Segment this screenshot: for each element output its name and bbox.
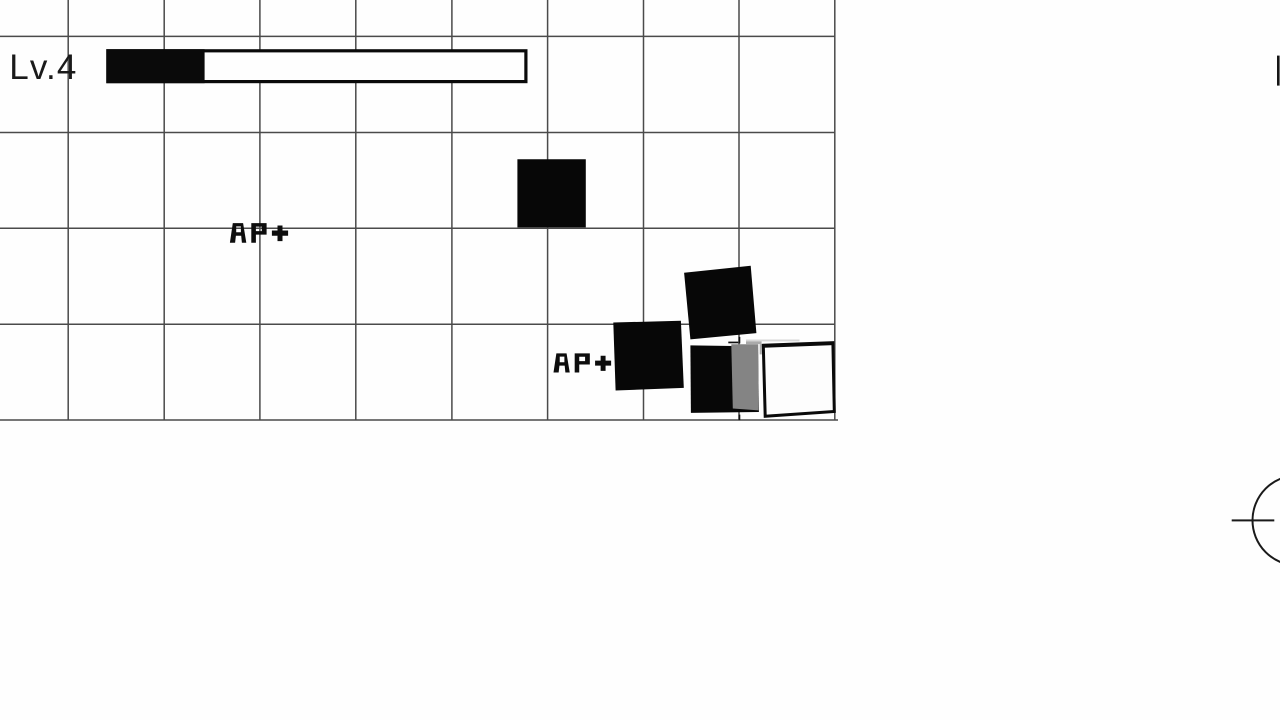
svg-text:Lv.4: Lv.4 xyxy=(9,48,77,87)
